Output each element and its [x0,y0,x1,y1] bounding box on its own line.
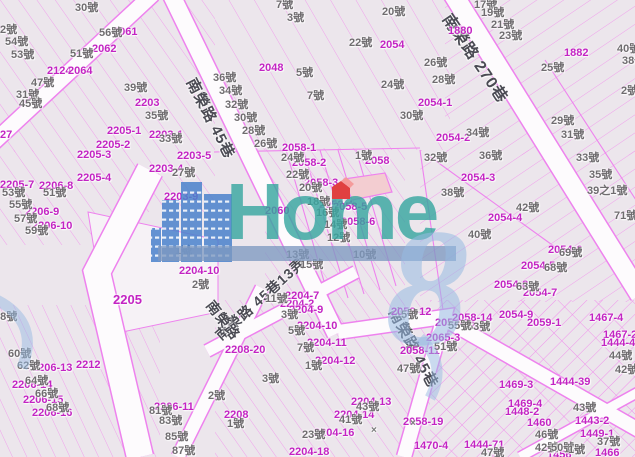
cadastral-map-canvas[interactable]: 南榮路 45巷南榮路 270巷南榮路 45巷13弄南榮路南榮路 45巷20612… [0,0,635,457]
watermark-numeral: 8 [385,192,469,385]
